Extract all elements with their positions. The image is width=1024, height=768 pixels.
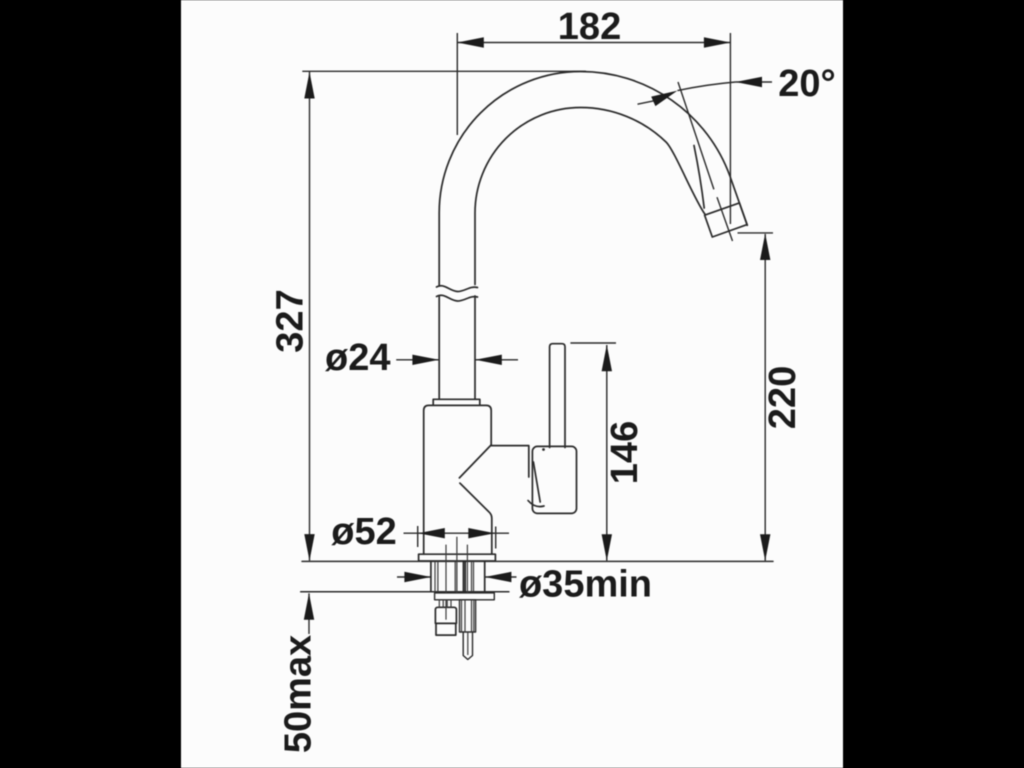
svg-text:220: 220	[762, 366, 804, 429]
svg-text:327: 327	[270, 289, 312, 352]
svg-text:ø52: ø52	[331, 511, 396, 553]
svg-text:182: 182	[558, 6, 621, 48]
svg-text:50max: 50max	[278, 635, 320, 753]
svg-text:ø35min: ø35min	[519, 563, 652, 605]
svg-text:146: 146	[604, 421, 646, 484]
svg-text:20°: 20°	[778, 63, 835, 105]
svg-text:ø24: ø24	[325, 337, 390, 379]
